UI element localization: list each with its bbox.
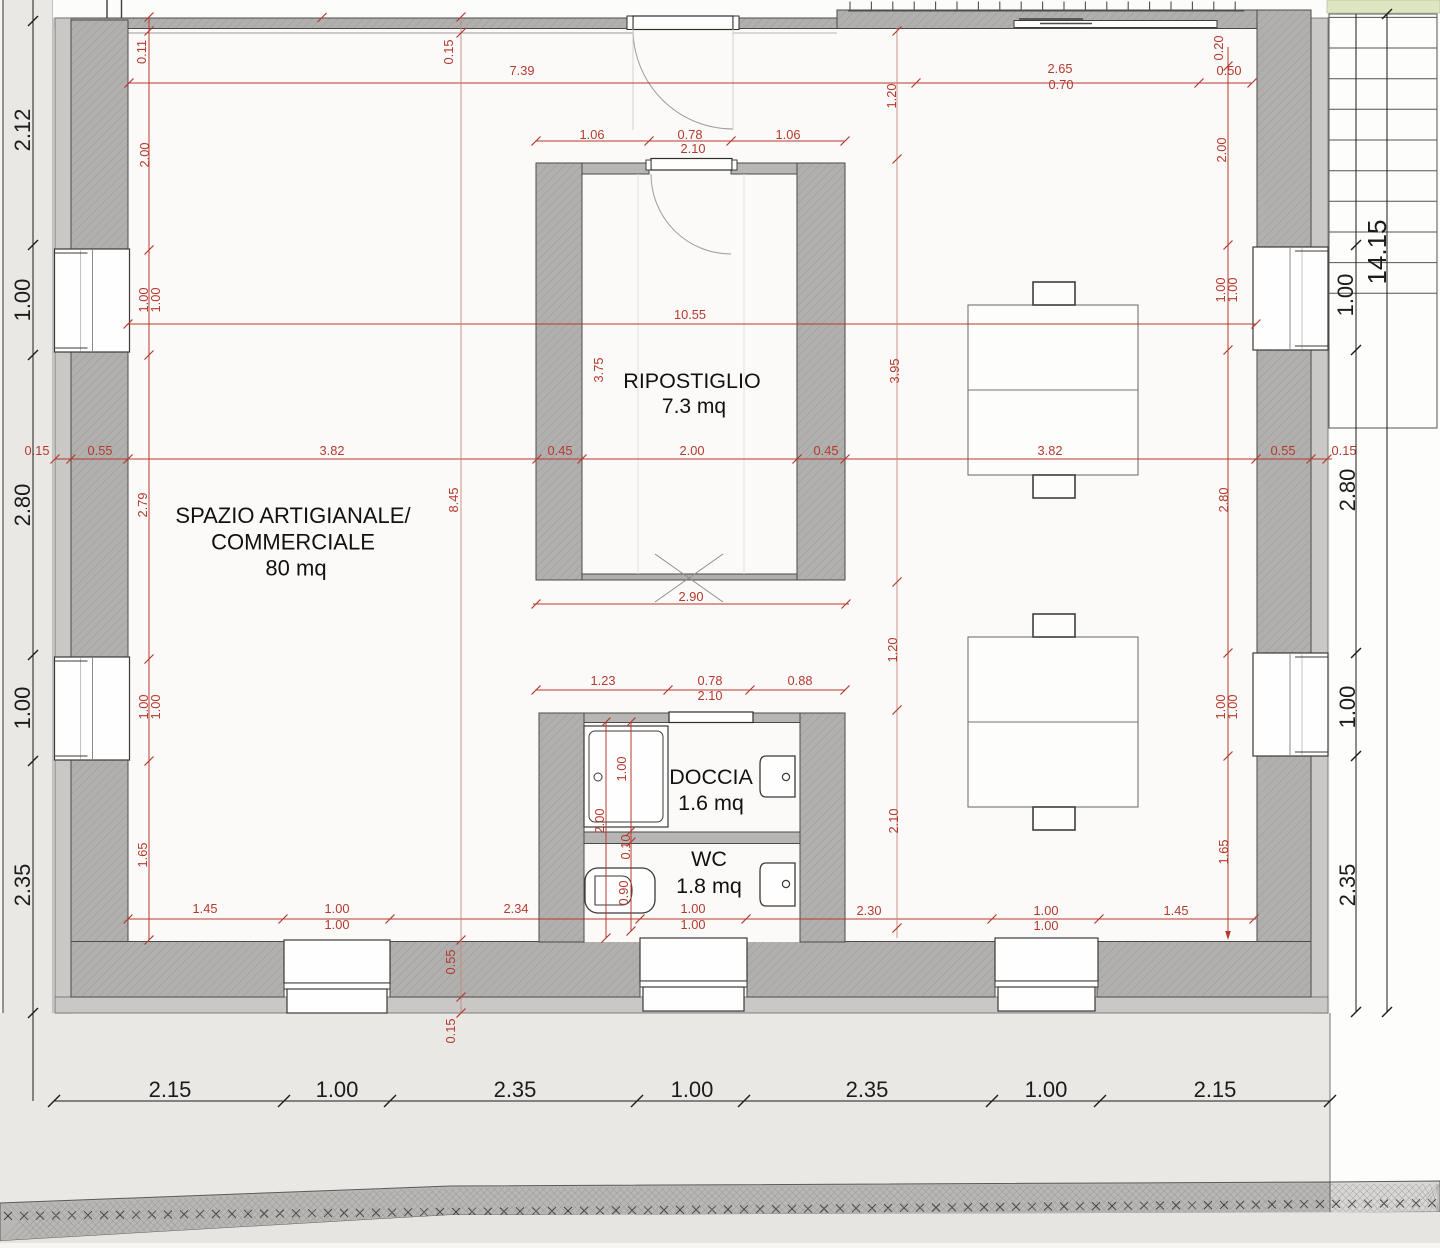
svg-text:1.00: 1.00 xyxy=(316,1077,359,1102)
svg-text:2.00: 2.00 xyxy=(592,809,607,834)
svg-text:1.00: 1.00 xyxy=(614,757,629,782)
svg-text:1.00: 1.00 xyxy=(1225,278,1240,303)
svg-text:2.80: 2.80 xyxy=(1335,469,1360,512)
svg-text:2.00: 2.00 xyxy=(680,443,705,458)
svg-text:80 mq: 80 mq xyxy=(265,556,326,581)
svg-text:2.65: 2.65 xyxy=(1048,61,1073,76)
svg-text:0.11: 0.11 xyxy=(134,40,149,64)
svg-text:2.35: 2.35 xyxy=(1335,864,1360,907)
svg-text:0.15: 0.15 xyxy=(443,1019,458,1044)
svg-text:0.78: 0.78 xyxy=(698,673,723,688)
svg-text:2.12: 2.12 xyxy=(10,109,35,152)
svg-text:0.50: 0.50 xyxy=(1217,63,1242,78)
svg-text:10.55: 10.55 xyxy=(674,307,706,322)
svg-text:1.00: 1.00 xyxy=(1335,686,1360,729)
svg-text:0.15: 0.15 xyxy=(441,40,456,65)
svg-text:1.06: 1.06 xyxy=(776,127,801,142)
svg-text:2.80: 2.80 xyxy=(10,484,35,527)
svg-text:0.10: 0.10 xyxy=(618,835,633,860)
svg-text:0.78: 0.78 xyxy=(678,127,703,142)
svg-text:DOCCIA: DOCCIA xyxy=(669,765,753,789)
svg-text:2.30: 2.30 xyxy=(857,903,882,918)
svg-text:2.35: 2.35 xyxy=(10,864,35,907)
svg-text:2.79: 2.79 xyxy=(135,493,150,518)
svg-text:2.90: 2.90 xyxy=(679,589,704,604)
svg-text:1.8 mq: 1.8 mq xyxy=(676,874,742,898)
svg-text:1.45: 1.45 xyxy=(193,901,218,916)
svg-text:0.20: 0.20 xyxy=(1211,36,1226,61)
svg-text:1.00: 1.00 xyxy=(1225,695,1240,720)
svg-text:1.00: 1.00 xyxy=(325,917,350,932)
svg-text:1.23: 1.23 xyxy=(591,673,616,688)
svg-text:1.00: 1.00 xyxy=(681,917,706,932)
svg-text:0.90: 0.90 xyxy=(616,881,631,906)
svg-text:0.45: 0.45 xyxy=(814,443,839,458)
svg-text:2.15: 2.15 xyxy=(1194,1077,1237,1102)
svg-text:2.10: 2.10 xyxy=(681,141,706,156)
svg-text:14.15: 14.15 xyxy=(1362,219,1392,284)
svg-text:2.10: 2.10 xyxy=(886,809,901,834)
svg-text:7.3 mq: 7.3 mq xyxy=(662,395,726,418)
svg-text:7.39: 7.39 xyxy=(510,63,535,78)
svg-text:2.34: 2.34 xyxy=(504,901,529,916)
svg-text:1.06: 1.06 xyxy=(580,127,605,142)
svg-text:RIPOSTIGLIO: RIPOSTIGLIO xyxy=(623,369,760,393)
svg-text:1.6 mq: 1.6 mq xyxy=(678,791,744,815)
svg-text:1.20: 1.20 xyxy=(885,638,900,663)
svg-text:2.00: 2.00 xyxy=(1214,138,1229,163)
svg-text:2.10: 2.10 xyxy=(698,688,723,703)
svg-text:2.35: 2.35 xyxy=(846,1077,889,1102)
svg-text:0.70: 0.70 xyxy=(1049,77,1074,92)
svg-text:0.55: 0.55 xyxy=(443,950,458,975)
svg-text:2.80: 2.80 xyxy=(1216,488,1231,513)
svg-text:3.82: 3.82 xyxy=(1038,443,1063,458)
svg-text:1.00: 1.00 xyxy=(1034,903,1059,918)
svg-text:0.15: 0.15 xyxy=(25,443,50,458)
svg-text:1.00: 1.00 xyxy=(1025,1077,1068,1102)
svg-text:1.00: 1.00 xyxy=(681,901,706,916)
svg-text:1.20: 1.20 xyxy=(884,84,899,109)
svg-text:1.00: 1.00 xyxy=(148,288,163,313)
svg-text:0.15: 0.15 xyxy=(1332,443,1357,458)
svg-text:3.95: 3.95 xyxy=(887,359,902,384)
svg-text:2.00: 2.00 xyxy=(137,143,152,168)
svg-text:SPAZIO ARTIGIANALE/: SPAZIO ARTIGIANALE/ xyxy=(175,503,411,528)
svg-text:0.55: 0.55 xyxy=(88,443,113,458)
svg-text:1.00: 1.00 xyxy=(10,687,35,730)
svg-text:0.55: 0.55 xyxy=(1271,443,1296,458)
svg-text:1.00: 1.00 xyxy=(1333,274,1358,317)
svg-text:1.65: 1.65 xyxy=(1216,840,1231,865)
svg-text:1.65: 1.65 xyxy=(135,843,150,868)
svg-text:3.82: 3.82 xyxy=(320,443,345,458)
svg-text:8.45: 8.45 xyxy=(446,488,461,513)
svg-text:1.00: 1.00 xyxy=(10,279,35,322)
svg-text:2.15: 2.15 xyxy=(149,1077,192,1102)
svg-text:1.00: 1.00 xyxy=(148,695,163,720)
svg-text:1.45: 1.45 xyxy=(1164,903,1189,918)
svg-text:1.00: 1.00 xyxy=(1034,918,1059,933)
svg-text:WC: WC xyxy=(691,847,727,871)
svg-text:2.35: 2.35 xyxy=(494,1077,537,1102)
svg-text:0.45: 0.45 xyxy=(548,443,573,458)
svg-text:COMMERCIALE: COMMERCIALE xyxy=(211,530,375,555)
svg-text:1.00: 1.00 xyxy=(325,901,350,916)
svg-text:0.88: 0.88 xyxy=(788,673,813,688)
svg-text:1.00: 1.00 xyxy=(671,1077,714,1102)
svg-text:3.75: 3.75 xyxy=(591,358,606,383)
